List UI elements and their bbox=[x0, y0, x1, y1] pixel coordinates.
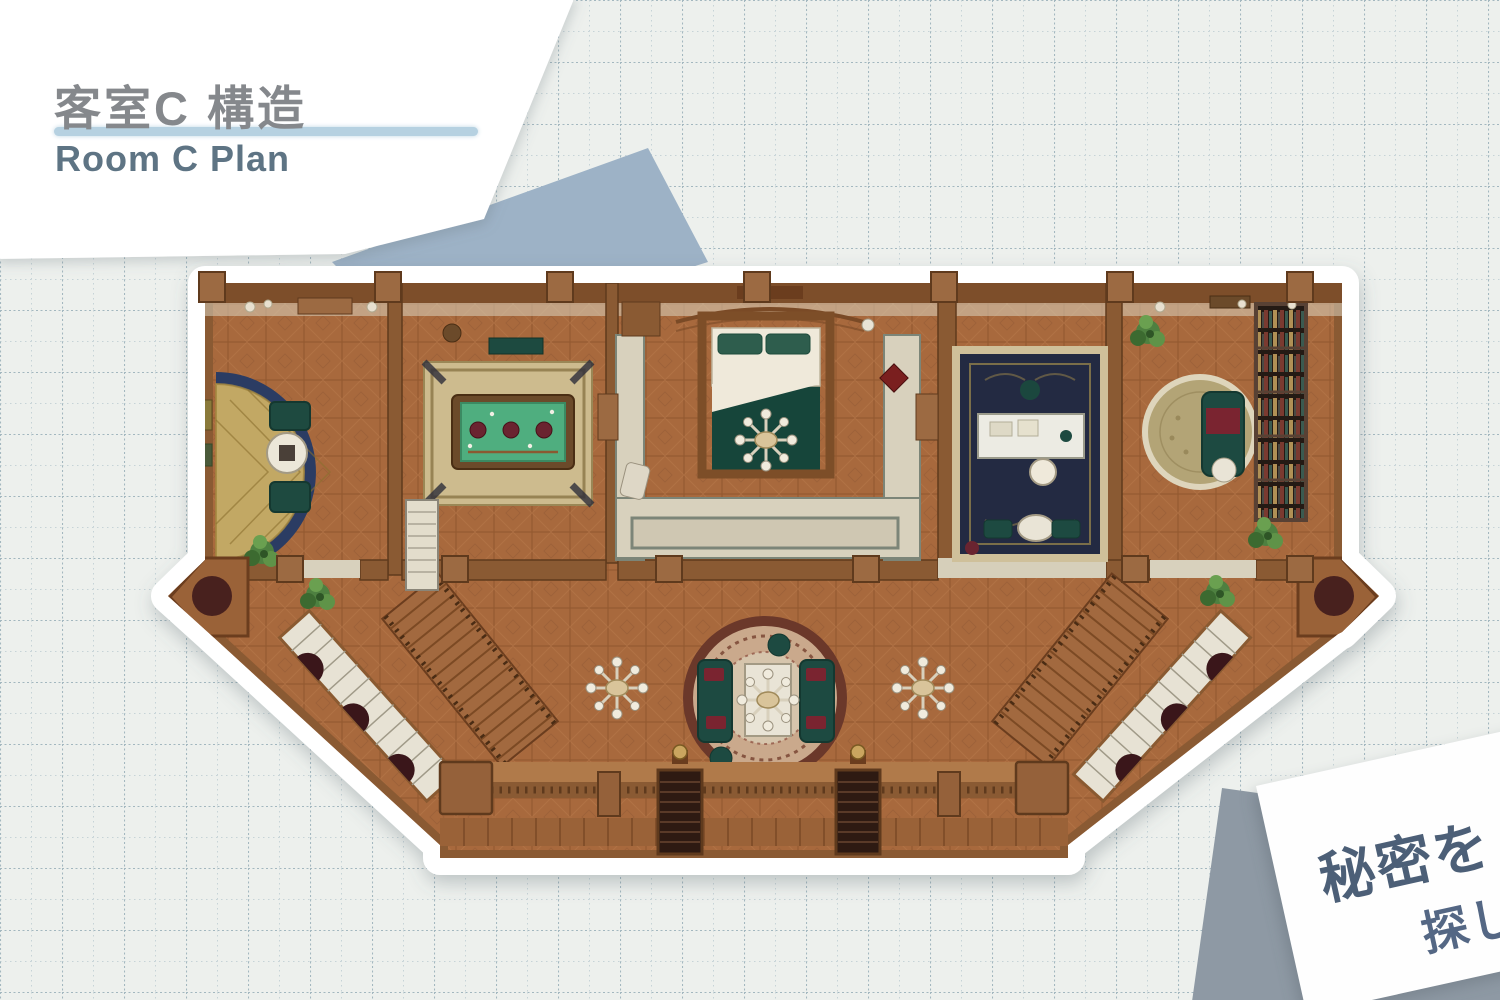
oval-table bbox=[1018, 515, 1054, 541]
console-table bbox=[298, 298, 352, 314]
wardrobe bbox=[622, 302, 660, 336]
pilaster bbox=[598, 394, 618, 440]
walkway bbox=[440, 762, 1068, 782]
armchair bbox=[270, 402, 310, 430]
page-subtitle: Room C Plan bbox=[55, 138, 290, 180]
wall-ornament bbox=[443, 324, 461, 342]
paper bbox=[990, 422, 1012, 436]
red-blanket bbox=[1206, 408, 1240, 434]
pier bbox=[938, 772, 960, 816]
pouf bbox=[768, 634, 790, 656]
stool bbox=[1052, 520, 1080, 538]
table-clock bbox=[279, 445, 295, 461]
paper bbox=[1018, 420, 1038, 436]
page-title: 客室C 構造 bbox=[54, 70, 307, 139]
desk-chair bbox=[1030, 459, 1056, 485]
cue-rack-shelf bbox=[489, 338, 543, 354]
page-canvas: 客室C 構造 Room C Plan 秘密を 探して bbox=[0, 0, 1500, 1000]
sitting-room-threshold bbox=[300, 560, 360, 578]
outer-band bbox=[440, 818, 1068, 846]
inkwell bbox=[1060, 430, 1072, 442]
newel-post bbox=[1016, 762, 1068, 814]
red-ornament bbox=[965, 541, 979, 555]
stool bbox=[984, 520, 1012, 538]
pier bbox=[598, 772, 620, 816]
bookshelf bbox=[1256, 304, 1306, 520]
vestibule bbox=[406, 500, 438, 590]
newel-post bbox=[440, 762, 492, 814]
billiard-rosettes bbox=[470, 422, 552, 438]
pilaster bbox=[916, 394, 938, 440]
reading-threshold bbox=[1150, 560, 1256, 578]
pillow bbox=[718, 334, 762, 354]
armchair bbox=[270, 482, 310, 512]
round-cushion bbox=[1212, 458, 1236, 482]
room-study bbox=[956, 350, 1104, 558]
pillow bbox=[766, 334, 810, 354]
tea-tray bbox=[862, 319, 874, 331]
runner bbox=[632, 518, 898, 548]
